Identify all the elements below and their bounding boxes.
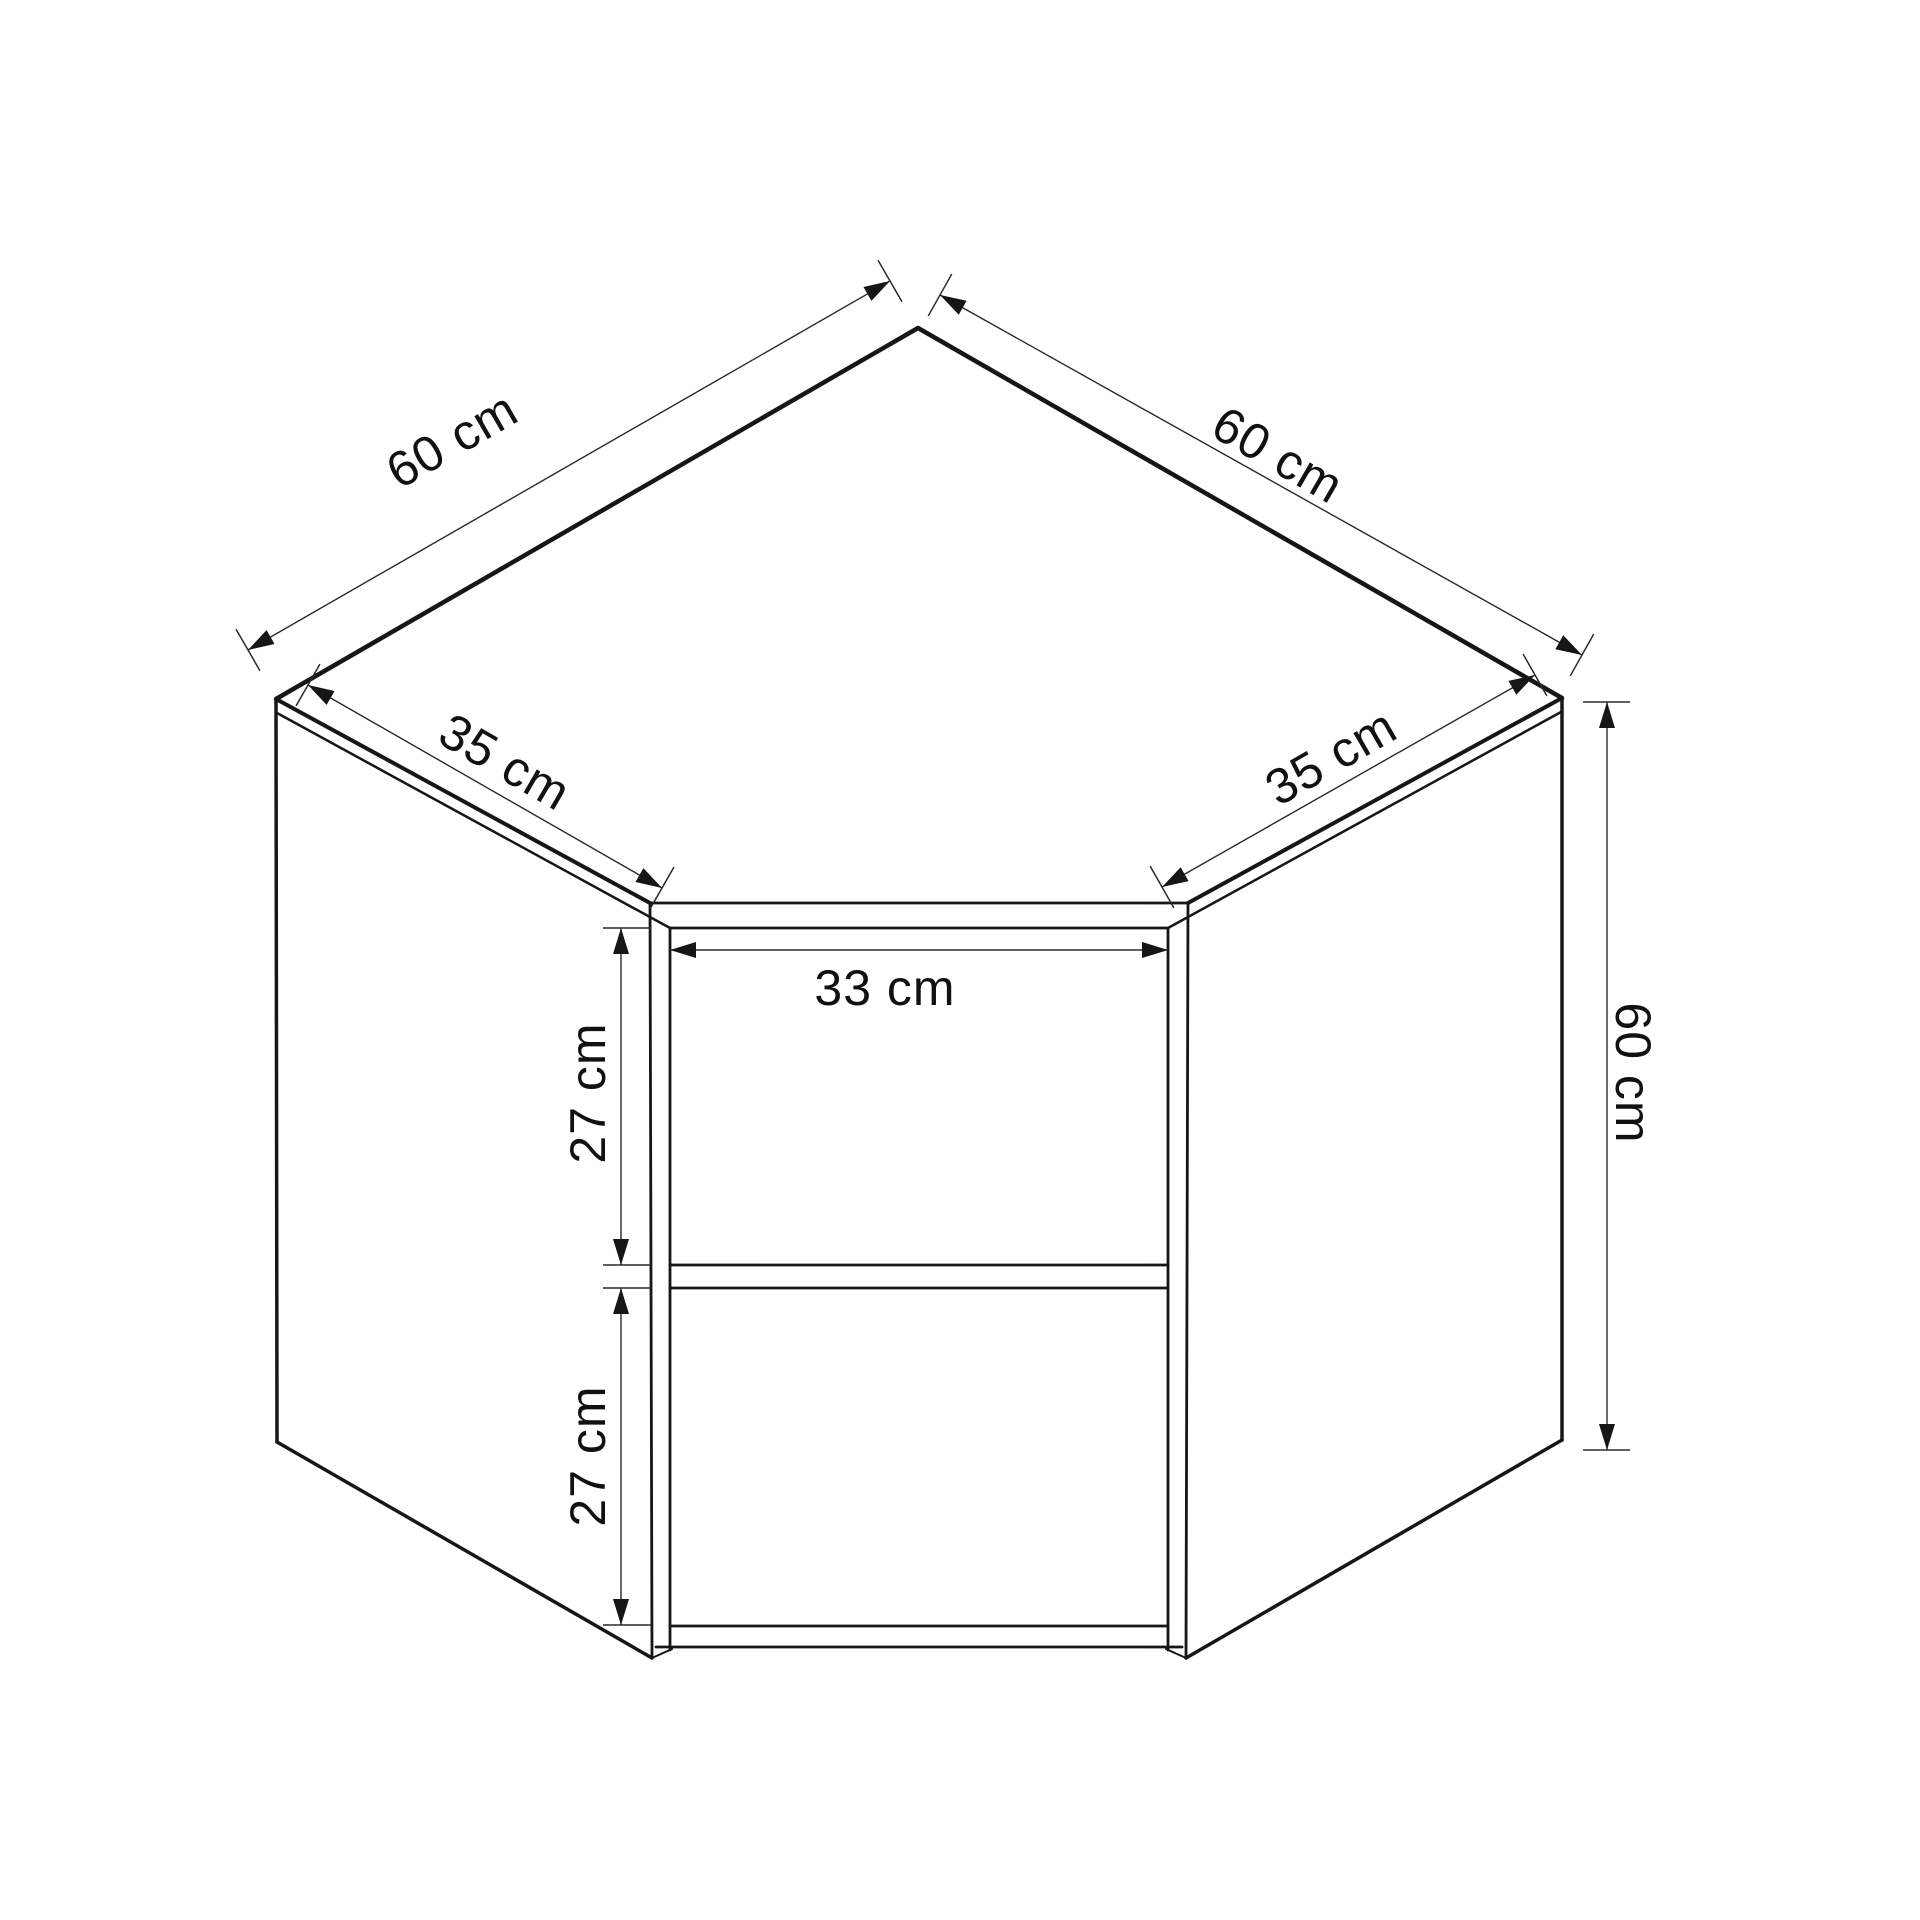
dimension-arrowhead bbox=[1508, 675, 1535, 695]
dimension-arrowhead bbox=[1142, 942, 1168, 958]
cabinet-line-drawing bbox=[0, 0, 1920, 1920]
dimension-arrowhead bbox=[863, 281, 890, 301]
dimension-end-tick bbox=[1570, 634, 1593, 676]
dimension-arrowhead bbox=[613, 1239, 629, 1265]
dimension-arrowhead bbox=[635, 868, 662, 888]
dimension-end-tick bbox=[878, 260, 902, 302]
front-right-stile-outer-line bbox=[1186, 903, 1188, 1658]
dimension-label-opening-width: 33 cm bbox=[814, 963, 955, 1013]
dimension-arrowhead bbox=[248, 630, 275, 650]
dimension-end-tick bbox=[1523, 654, 1547, 696]
dimension-arrowhead bbox=[940, 295, 967, 315]
dimension-arrowhead bbox=[1599, 702, 1615, 728]
dimension-label-upper-compartment-height: 27 cm bbox=[563, 1022, 613, 1163]
dimension-line-right-front-depth bbox=[1162, 675, 1535, 887]
dimension-label-side-height: 60 cm bbox=[1608, 1002, 1658, 1143]
dimension-arrowhead bbox=[1599, 1424, 1615, 1450]
dimension-arrowhead bbox=[670, 942, 696, 958]
dimension-arrowhead bbox=[613, 1288, 629, 1314]
dimension-end-tick bbox=[928, 274, 951, 316]
top-back-left-edge bbox=[276, 328, 918, 699]
front-left-stile-outer-line bbox=[650, 903, 652, 1658]
top-back-right-edge bbox=[918, 328, 1562, 698]
dimension-arrowhead bbox=[613, 928, 629, 954]
dimension-line-left-front-depth bbox=[308, 685, 662, 888]
bottom-right-corner-edge bbox=[1166, 1649, 1186, 1658]
dimension-lines bbox=[248, 281, 1607, 1625]
dimension-arrowhead bbox=[1555, 635, 1582, 655]
dimension-line-top-left-width bbox=[248, 281, 890, 650]
dimension-arrowhead bbox=[613, 1599, 629, 1625]
dimension-arrowhead bbox=[1162, 867, 1189, 887]
right-side-bottom-edge bbox=[1186, 1440, 1562, 1658]
diagram-canvas: 60 cm 60 cm 35 cm 35 cm 33 cm 27 cm 27 c… bbox=[0, 0, 1920, 1920]
bottom-left-corner-edge bbox=[652, 1649, 672, 1658]
dimension-label-lower-compartment-height: 27 cm bbox=[563, 1385, 613, 1526]
left-side-vertical-edge bbox=[276, 699, 277, 1442]
extension-lines bbox=[603, 702, 1630, 1625]
dimension-arrowhead bbox=[308, 685, 335, 705]
dimension-end-tick bbox=[236, 629, 260, 671]
